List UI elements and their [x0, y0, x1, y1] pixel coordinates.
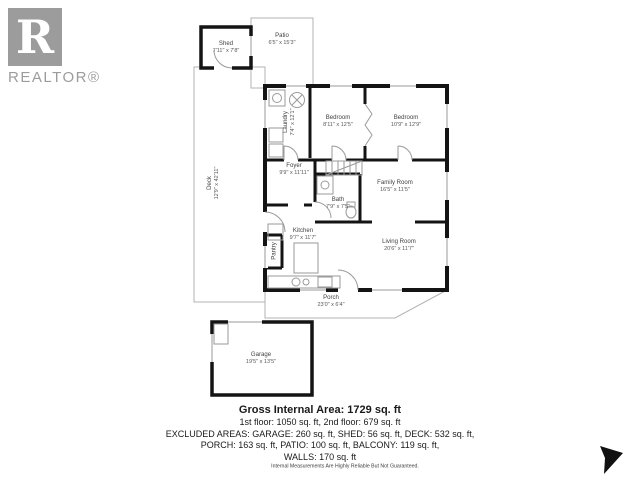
room-label-pantry: Pantry — [270, 242, 278, 259]
room-label-porch: Porch 23'0" x 6'4" — [317, 293, 344, 308]
patio-outline — [251, 18, 313, 88]
room-label-kitchen: Kitchen 9'7" x 11'7" — [290, 226, 317, 241]
room-label-bath: Bath 7'9" x 7'5" — [326, 195, 350, 210]
gross-area-title: Gross Internal Area: 1729 sq. ft — [0, 404, 640, 416]
room-label-shed: Shed 7'11" x 7'8" — [213, 39, 240, 54]
excluded-areas-line-1: EXCLUDED AREAS: GARAGE: 260 sq. ft, SHED… — [0, 429, 640, 441]
room-label-foyer: Foyer 9'9" x 11'11" — [279, 161, 308, 176]
floor-plan-page: R REALTOR® Shed 7'11" x 7'8" Patio 6'5" … — [0, 0, 640, 480]
porch-outline — [265, 290, 447, 318]
room-label-patio: Patio 6'5" x 15'3" — [268, 31, 295, 46]
excluded-areas-line-2: PORCH: 163 sq. ft, PATIO: 100 sq. ft, BA… — [0, 440, 640, 452]
room-label-garage: Garage 19'5" x 13'5" — [246, 350, 276, 365]
realtor-logo-icon: R — [8, 8, 62, 66]
exterior-walls — [201, 27, 447, 395]
floors-area-line: 1st floor: 1050 sq. ft, 2nd floor: 679 s… — [0, 417, 640, 429]
realtor-logo-letter: R — [16, 10, 54, 64]
room-label-laundry: Laundry 7'4" x 12'1" — [281, 108, 296, 135]
room-label-bedroom-1: Bedroom 8'11" x 12'5" — [323, 113, 353, 128]
room-label-family-room: Family Room 16'5" x 11'5" — [377, 178, 413, 193]
area-summary: Gross Internal Area: 1729 sq. ft 1st flo… — [0, 404, 640, 463]
room-label-deck: Deck 12'9" x 42'11" — [205, 167, 220, 200]
room-label-living-room: Living Room 20'6" x 11'7" — [382, 237, 416, 252]
room-label-bedroom-2: Bedroom 10'9" x 12'9" — [391, 113, 421, 128]
excluded-areas-line-3: WALLS: 170 sq. ft — [0, 452, 640, 464]
realtor-logo-text: REALTOR® — [8, 69, 118, 86]
measurement-disclaimer: Internal Measurements Are Highly Reliabl… — [271, 463, 419, 469]
realtor-logo: R REALTOR® — [8, 8, 118, 86]
